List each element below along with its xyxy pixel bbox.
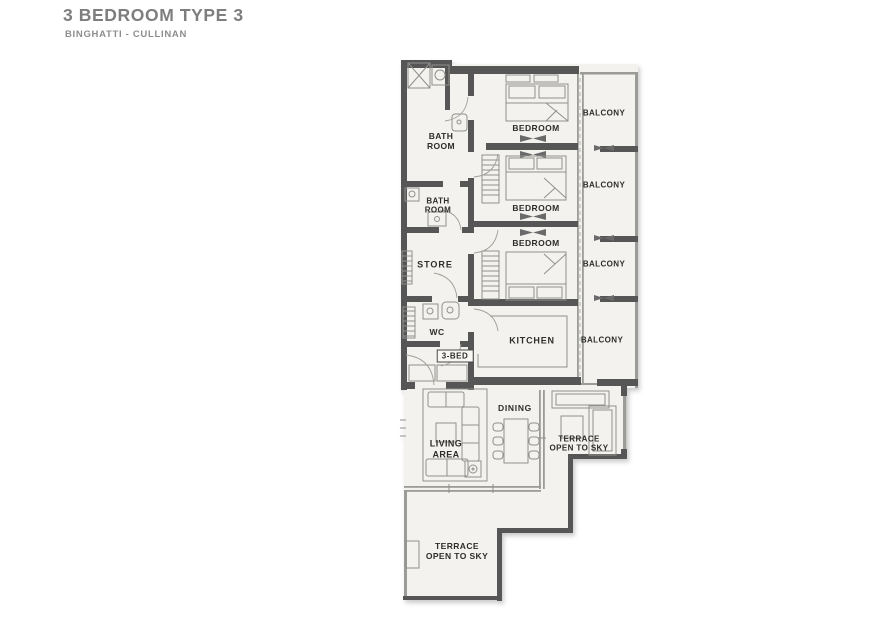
room-label-dining: DINING bbox=[498, 403, 532, 413]
floorplan-drawing bbox=[0, 0, 878, 619]
room-label-balcony-3: BALCONY bbox=[583, 259, 625, 268]
room-label-balcony-2: BALCONY bbox=[583, 180, 625, 189]
room-label-bedroom-3: BEDROOM bbox=[512, 238, 559, 248]
room-label-wc: WC bbox=[430, 327, 445, 337]
room-label-bedroom-2: BEDROOM bbox=[512, 203, 559, 213]
room-label-terrace-bottom: TERRACE OPEN TO SKY bbox=[426, 541, 488, 561]
room-label-bathroom-2: BATH ROOM bbox=[425, 197, 452, 216]
room-label-kitchen: KITCHEN bbox=[509, 336, 555, 347]
unit-tag: 3-BED bbox=[437, 350, 474, 363]
room-label-balcony-4: BALCONY bbox=[581, 335, 623, 344]
room-label-bedroom-1: BEDROOM bbox=[512, 123, 559, 133]
room-label-store: STORE bbox=[417, 260, 453, 271]
room-label-terrace-right: TERRACE OPEN TO SKY bbox=[550, 435, 609, 454]
room-label-balcony-1: BALCONY bbox=[583, 108, 625, 117]
room-label-bathroom-1: BATH ROOM bbox=[427, 131, 455, 151]
room-label-living-area: LIVING AREA bbox=[430, 438, 462, 459]
